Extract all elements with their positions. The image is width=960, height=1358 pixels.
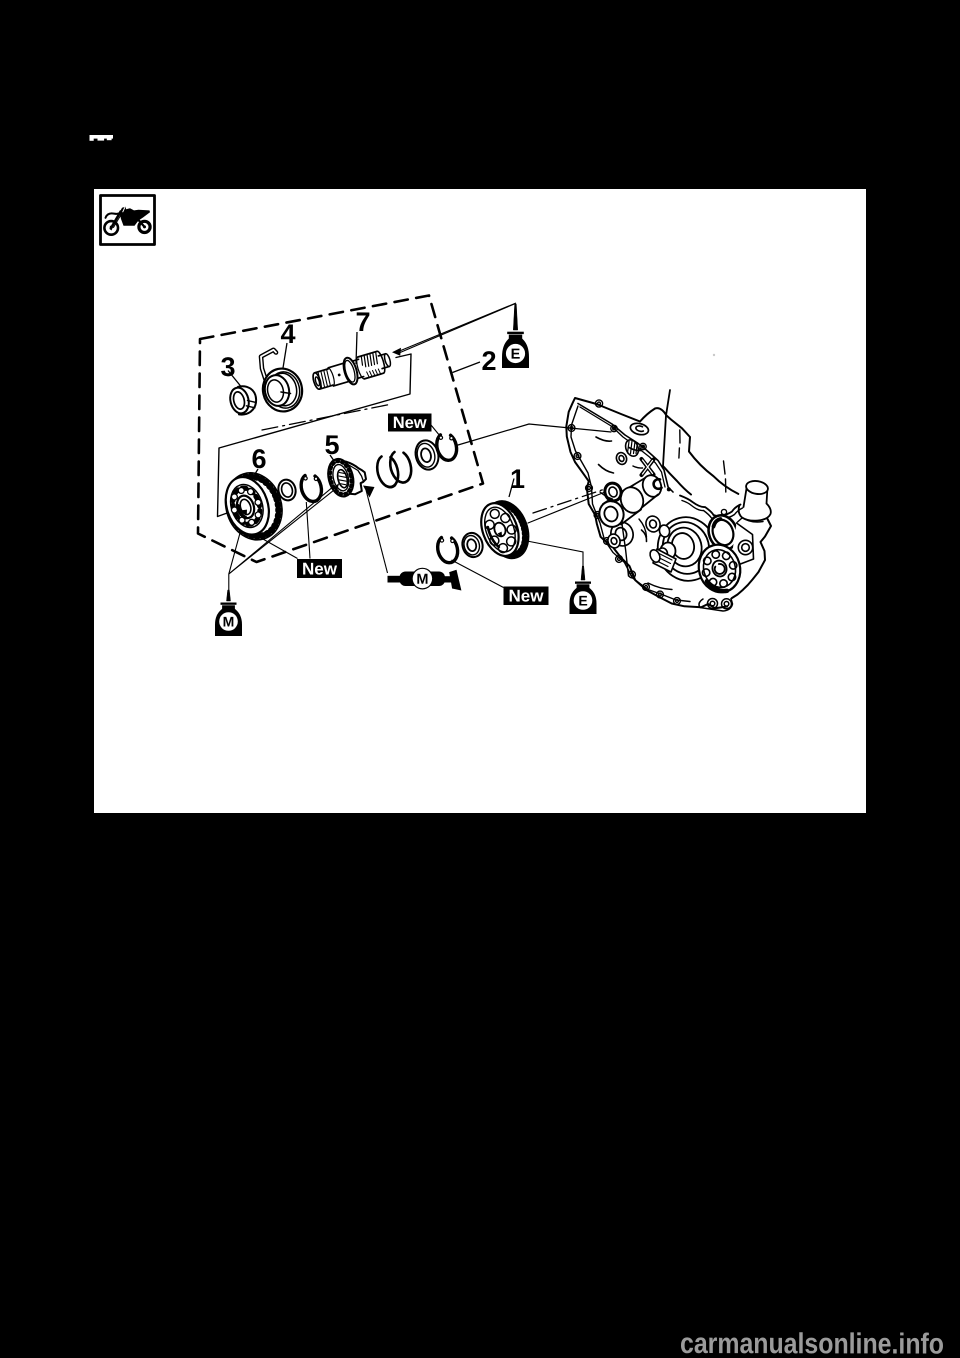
svg-text:6: 6 — [251, 444, 266, 474]
svg-text:New: New — [302, 559, 338, 578]
svg-text:New: New — [393, 414, 427, 432]
svg-text:E: E — [511, 347, 521, 363]
svg-text:M: M — [223, 613, 235, 629]
svg-text:New: New — [509, 586, 545, 605]
svg-text:M: M — [416, 572, 428, 588]
svg-text:4: 4 — [280, 319, 295, 349]
svg-text:carmanualsonline.info: carmanualsonline.info — [680, 1328, 944, 1358]
svg-text:7: 7 — [355, 307, 370, 337]
svg-text:5: 5 — [324, 430, 339, 460]
svg-text:E: E — [578, 592, 587, 608]
svg-text:1: 1 — [510, 464, 525, 494]
svg-text:2: 2 — [481, 346, 496, 376]
